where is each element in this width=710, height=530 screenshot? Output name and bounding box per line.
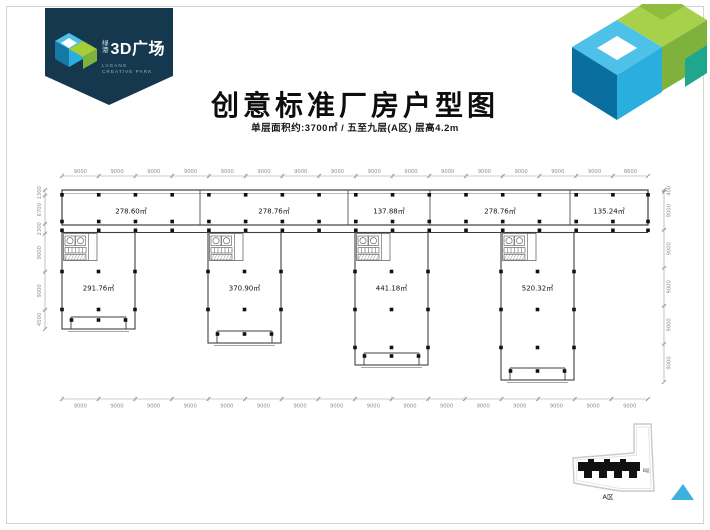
dim-bottom: 9000 (403, 404, 416, 410)
page-subtitle: 单层面积约:3700㎡ / 五至九层(A区) 层高4.2m (0, 120, 710, 134)
dim-top: 9000 (368, 169, 381, 175)
dim-left: 1300 (37, 186, 43, 199)
dim-bottom: 9000 (367, 404, 380, 410)
dim-left: 4500 (37, 313, 43, 326)
area-label-lower: 520.32㎡ (522, 285, 554, 293)
dim-top: 9000 (551, 169, 564, 175)
dim-top: 9000 (184, 169, 197, 175)
dim-top: 9000 (478, 169, 491, 175)
dim-top: 9000 (257, 169, 270, 175)
dim-right: 9000 (667, 242, 673, 255)
logo-cube-icon (54, 30, 100, 78)
dim-bottom: 9000 (623, 404, 636, 410)
dim-top: 9000 (294, 169, 307, 175)
dim-top: 9000 (404, 169, 417, 175)
area-label-lower: 441.18㎡ (376, 285, 408, 293)
dim-right: 9000 (667, 280, 673, 293)
dim-top: 9000 (331, 169, 344, 175)
brand-cn-small: 绿 港 (102, 40, 109, 54)
blue-triangle-marker (671, 484, 694, 500)
brand-en-line2: CREATIVE PARK (102, 69, 165, 75)
dim-bottom: 9000 (293, 404, 306, 410)
dim-bottom: 9000 (440, 404, 453, 410)
zone-b-label: B区 (643, 468, 650, 473)
area-label-lower: 291.76㎡ (83, 285, 115, 293)
dim-bottom: 9000 (477, 404, 490, 410)
dim-top: 9000 (147, 169, 160, 175)
site-outline (573, 424, 654, 491)
dim-bottom: 9000 (550, 404, 563, 410)
dim-top: 9000 (221, 169, 234, 175)
key-plan: B区 A区 (560, 420, 705, 525)
dim-bottom: 9000 (110, 404, 123, 410)
zone-a-label: A区 (603, 493, 614, 501)
dim-bottom: 9000 (586, 404, 599, 410)
dim-top: 9000 (441, 169, 454, 175)
dim-top: 8600 (624, 169, 637, 175)
dim-bottom: 9000 (330, 404, 343, 410)
flyer-page: { "header": { "title": "创意标准厂房户型图", "sub… (0, 0, 710, 530)
brand-cn-large: 3D广场 (111, 35, 165, 59)
dim-bottom: 9000 (74, 404, 87, 410)
area-label-upper: 278.76㎡ (484, 208, 516, 216)
dim-right: 400 (667, 186, 673, 196)
dim-right: 9000 (667, 318, 673, 331)
dim-left: 2300 (37, 222, 43, 235)
dim-left: 6700 (37, 203, 43, 216)
dim-left: 9000 (37, 246, 43, 259)
dim-top: 9000 (588, 169, 601, 175)
area-label-upper: 278.76㎡ (258, 208, 290, 216)
area-label-lower: 370.90㎡ (229, 285, 261, 293)
area-label-upper: 278.60㎡ (115, 208, 147, 216)
brand-text-block: 绿 港 3D广场 LVGANG CREATIVE PARK (102, 35, 165, 75)
area-label-upper: 137.88㎡ (373, 208, 405, 216)
dim-bottom: 9000 (513, 404, 526, 410)
dim-right: 9000 (667, 356, 673, 369)
dim-top: 9000 (110, 169, 123, 175)
dim-top: 9000 (514, 169, 527, 175)
dim-left: 9000 (37, 284, 43, 297)
dim-bottom: 9000 (257, 404, 270, 410)
floor-plan: 9000900090009000900090009000900090009000… (30, 148, 690, 420)
dim-bottom: 9000 (220, 404, 233, 410)
dim-bottom: 9000 (184, 404, 197, 410)
area-label-upper: 135.24㎡ (593, 208, 625, 216)
dim-top: 9000 (74, 169, 87, 175)
dim-bottom: 9000 (147, 404, 160, 410)
dim-right: 9000 (667, 204, 673, 217)
page-title: 创意标准厂房户型图 (0, 84, 710, 124)
